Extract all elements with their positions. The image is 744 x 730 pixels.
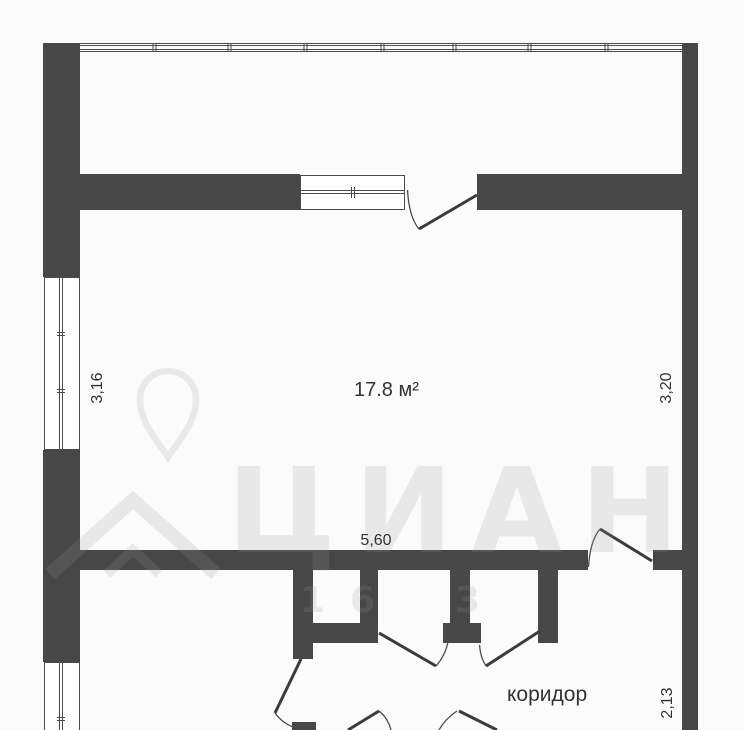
wall-block-bottom-edge (292, 722, 316, 730)
lower-room-door (275, 659, 301, 728)
wall-right (682, 43, 698, 730)
floor-plan-drawing: ЦИАН 1 6 3 17.8 м² коридор 3,16 3,20 2,1… (0, 0, 744, 730)
wall-stub-e (538, 570, 558, 643)
watermark-pin-icon (140, 371, 196, 457)
watermark-digit: 1 (300, 580, 325, 621)
bottom-door-left-leaf (348, 711, 379, 730)
corridor-label: коридор (507, 683, 587, 706)
wall-stub-d-foot (443, 623, 481, 643)
toilet-door (480, 631, 541, 666)
bathroom-door-arc (436, 642, 448, 666)
shaft-wall-bottom (313, 623, 378, 643)
toilet-door-arc (480, 645, 487, 666)
watermark-digit: 3 (455, 580, 480, 621)
toilet-door-leaf (486, 631, 540, 666)
balcony-wall-left-segment (80, 174, 300, 210)
room-area-label: 17.8 м² (354, 379, 419, 401)
wall-left-upper (43, 43, 80, 277)
dimension-left: 3,16 (89, 372, 106, 403)
balcony-door (408, 190, 478, 229)
window-left-upper (45, 278, 80, 450)
watermark-brand: ЦИАН (227, 442, 697, 580)
balcony-glazing (80, 44, 682, 53)
dimension-right-upper: 3,20 (658, 372, 675, 403)
bottom-door-right-arc (439, 711, 457, 730)
dimension-right-lower: 2,13 (659, 687, 676, 718)
dimension-bottom-width: 5,60 (360, 532, 391, 549)
window-left-lower (45, 663, 80, 730)
bottom-door-left-arc (379, 711, 391, 730)
watermark: ЦИАН 1 6 3 (50, 371, 697, 621)
lower-room-door-leaf (275, 659, 301, 713)
bottom-door-right-leaf (459, 711, 497, 730)
bathroom-door (379, 633, 448, 666)
window-balcony-partition (301, 176, 405, 210)
bottom-door-right (439, 711, 497, 730)
balcony-wall-right-segment (477, 174, 682, 210)
bottom-door-left (348, 711, 391, 730)
balcony-door-leaf (419, 195, 477, 229)
floor-plan: ЦИАН 1 6 3 17.8 м² коридор 3,16 3,20 2,1… (0, 0, 744, 730)
balcony-door-arc (408, 190, 420, 229)
watermark-digit: 6 (350, 580, 375, 621)
bathroom-door-leaf (379, 633, 436, 666)
